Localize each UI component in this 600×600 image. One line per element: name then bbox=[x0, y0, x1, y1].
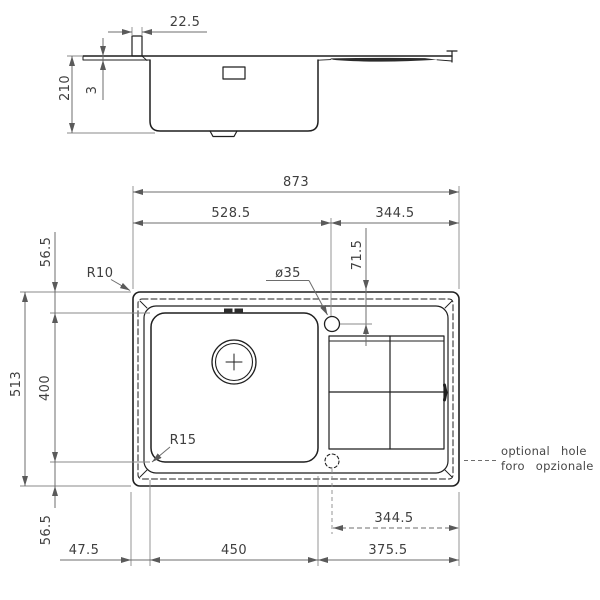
drain-center-cross bbox=[226, 354, 242, 370]
dim-label-drainer-span: 375.5 bbox=[368, 543, 407, 558]
ext-lines-depth bbox=[67, 56, 155, 133]
drainer-drain-notch bbox=[445, 385, 447, 400]
dim-label-rim-height: 3 bbox=[85, 86, 100, 95]
drainer-edge-line bbox=[437, 60, 452, 61]
cutout-dashed-line bbox=[138, 299, 453, 479]
dim-label-left-span: 528.5 bbox=[211, 206, 250, 221]
overflow-slot-right bbox=[235, 309, 244, 314]
bowl-profile bbox=[150, 60, 318, 131]
drainer-grid bbox=[329, 336, 446, 449]
dim-label-top-margin: 56.5 bbox=[39, 237, 54, 268]
drainer-slope-profile bbox=[330, 58, 437, 62]
dim-label-bowl-depth: 400 bbox=[38, 375, 53, 401]
sink-outer-rim bbox=[133, 292, 459, 486]
dim-label-bottom-margin: 56.5 bbox=[39, 515, 54, 546]
dim-label-right-span: 344.5 bbox=[375, 206, 414, 221]
technical-drawing-sheet: 22.5 3 210 bbox=[0, 0, 600, 600]
optional-hole bbox=[325, 454, 339, 468]
plan-view bbox=[133, 292, 459, 486]
leader-outer-corner-radius bbox=[111, 280, 130, 291]
rim-underside-right bbox=[318, 60, 331, 61]
label-outer-corner-radius: R10 bbox=[87, 266, 114, 281]
dim-label-bowl-width: 450 bbox=[221, 543, 247, 558]
dim-label-ledge-width: 22.5 bbox=[170, 15, 201, 30]
overflow-slot-left bbox=[224, 309, 233, 314]
dim-label-tap-offset: 71.5 bbox=[350, 240, 365, 271]
dim-label-overall-depth: 513 bbox=[9, 371, 24, 397]
ext-lines-ledge bbox=[132, 27, 142, 36]
note-optional-hole-en: optional hole bbox=[501, 444, 587, 458]
drain-fitting bbox=[210, 131, 237, 137]
label-bowl-corner-radius: R15 bbox=[170, 433, 197, 448]
leader-bowl-corner-radius bbox=[152, 447, 170, 462]
dim-label-overall-depth-side: 210 bbox=[58, 75, 73, 101]
dim-label-left-margin: 47.5 bbox=[69, 543, 100, 558]
side-elevation-view: 22.5 3 210 bbox=[58, 15, 457, 137]
leader-tap-hole bbox=[309, 281, 328, 316]
tap-hole bbox=[325, 317, 340, 332]
corner-chamfers bbox=[140, 301, 452, 477]
overflow-opening bbox=[223, 67, 245, 79]
plan-dimensions: 873 528.5 344.5 71.5 513 56.5 400 56.5 3… bbox=[9, 175, 594, 566]
note-optional-hole-it: foro opzionale bbox=[501, 459, 594, 473]
label-tap-hole-diameter: ø35 bbox=[275, 266, 301, 281]
rim-ledge bbox=[132, 36, 142, 56]
sink-drawing-svg: 22.5 3 210 bbox=[0, 0, 600, 600]
dim-label-overall-width: 873 bbox=[283, 175, 309, 190]
dim-label-optional-hole-offset: 344.5 bbox=[374, 511, 413, 526]
